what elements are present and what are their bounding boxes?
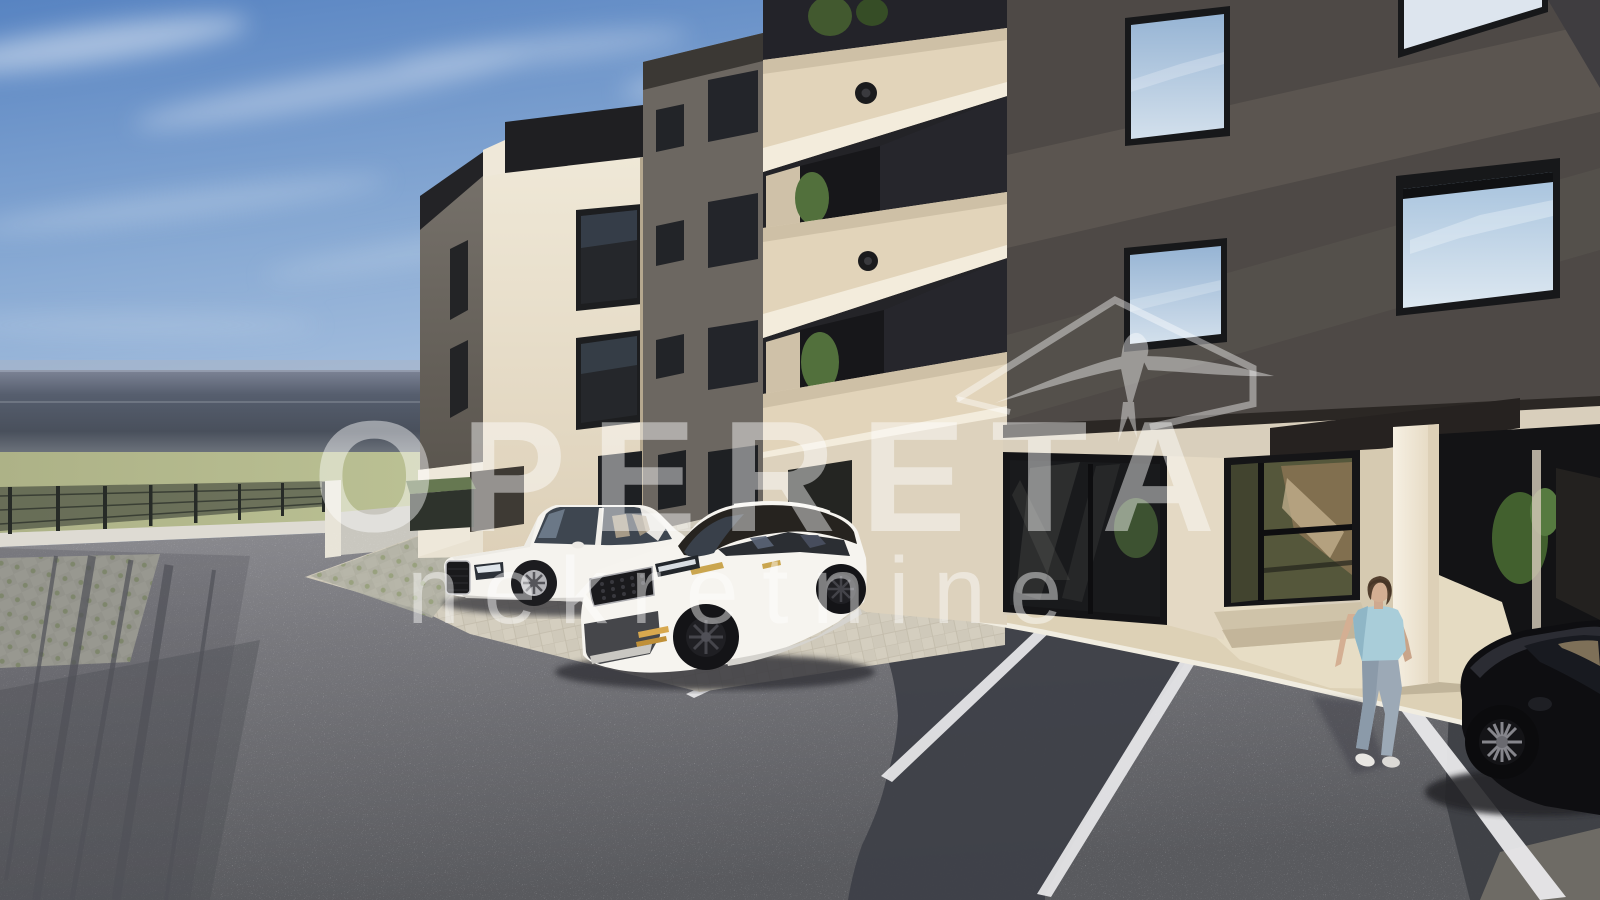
svg-text:nekretnine: nekretnine [407, 538, 1086, 644]
